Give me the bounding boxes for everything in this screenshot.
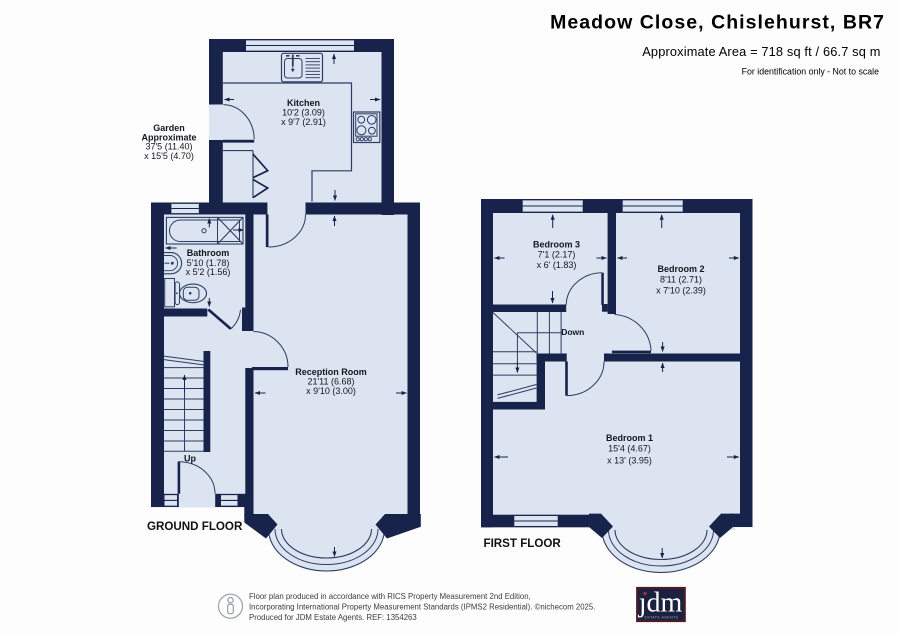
svg-text:Produced for JDM Estate Agents: Produced for JDM Estate Agents. REF: 135… — [249, 613, 417, 622]
svg-text:Bedroom 3: Bedroom 3 — [533, 239, 580, 249]
svg-text:Floor plan produced in accorda: Floor plan produced in accordance with R… — [249, 592, 531, 601]
svg-text:ESTATE AGENTS: ESTATE AGENTS — [645, 615, 679, 619]
svg-text:x 15'5 (4.70): x 15'5 (4.70) — [144, 151, 194, 161]
svg-text:x 13' (3.95): x 13' (3.95) — [607, 455, 652, 465]
svg-text:15'4 (4.67): 15'4 (4.67) — [608, 443, 651, 453]
svg-text:x 7'10 (2.39): x 7'10 (2.39) — [656, 286, 706, 296]
svg-text:Bathroom: Bathroom — [187, 248, 230, 258]
svg-text:7'1 (2.17): 7'1 (2.17) — [538, 250, 576, 260]
svg-text:Up: Up — [184, 454, 196, 464]
svg-text:For identification only - Not: For identification only - Not to scale — [742, 67, 879, 77]
svg-text:8'11 (2.71): 8'11 (2.71) — [660, 275, 702, 285]
svg-text:FIRST FLOOR: FIRST FLOOR — [484, 537, 562, 550]
svg-text:GROUND FLOOR: GROUND FLOOR — [147, 520, 243, 533]
svg-text:Bedroom 2: Bedroom 2 — [657, 264, 704, 274]
svg-text:Kitchen: Kitchen — [287, 98, 320, 108]
svg-text:Down: Down — [561, 327, 584, 337]
svg-text:Bedroom 1: Bedroom 1 — [606, 433, 653, 443]
svg-text:x 6' (1.83): x 6' (1.83) — [537, 260, 577, 270]
svg-text:10'2 (3.09): 10'2 (3.09) — [282, 107, 325, 117]
svg-text:Incorporating International Pr: Incorporating International Property Mea… — [249, 602, 595, 611]
svg-text:21'11 (6.68): 21'11 (6.68) — [307, 376, 354, 386]
svg-text:x 9'10 (3.00): x 9'10 (3.00) — [306, 386, 356, 396]
svg-text:Approximate Area = 718 sq ft /: Approximate Area = 718 sq ft / 66.7 sq m — [642, 44, 880, 59]
svg-text:x 5'2 (1.56): x 5'2 (1.56) — [186, 267, 231, 277]
svg-text:Meadow Close, Chislehurst, BR7: Meadow Close, Chislehurst, BR7 — [550, 12, 885, 34]
svg-text:x 9'7 (2.91): x 9'7 (2.91) — [281, 117, 326, 127]
svg-text:Reception Room: Reception Room — [295, 367, 367, 377]
